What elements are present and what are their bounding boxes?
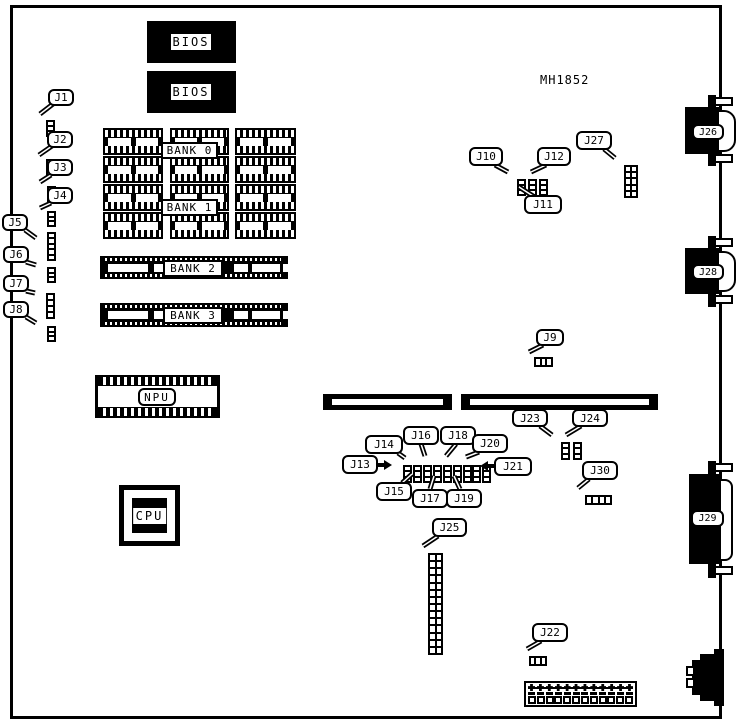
callout-j3: J3	[47, 159, 73, 176]
memory-dip-socket	[103, 128, 163, 155]
memory-dip-socket	[235, 128, 296, 155]
callout-j15: J15	[376, 482, 412, 501]
callout-j10: J10	[469, 147, 503, 166]
bios-chip-bottom: BIOS	[147, 71, 236, 113]
memory-dip-socket	[103, 156, 163, 183]
callout-j18: J18	[440, 426, 476, 445]
bank3-label: BANK 3	[163, 307, 223, 324]
callout-j13: J13	[342, 455, 378, 474]
callout-j23: J23	[512, 409, 548, 427]
j18-jumper	[453, 465, 462, 483]
callout-j27: J27	[576, 131, 612, 150]
j16-jumper	[433, 465, 442, 483]
j30-jumper	[585, 495, 612, 505]
j12-jumper	[539, 179, 548, 196]
j26-screw-tab-top	[714, 97, 733, 106]
cpu-label: CPU	[133, 508, 167, 524]
callout-j20: J20	[472, 434, 508, 453]
expansion-slot-right	[461, 394, 658, 410]
bios-chip-top-label: BIOS	[171, 34, 211, 50]
bank0-label: BANK 0	[161, 142, 218, 159]
memory-dip-socket	[103, 184, 163, 211]
j15-jumper	[423, 465, 432, 483]
memory-dip-socket	[235, 212, 296, 239]
j28-screw-tab-top	[714, 238, 733, 247]
callout-j24: J24	[572, 409, 608, 427]
memory-dip-socket	[103, 212, 163, 239]
bios-chip-bottom-label: BIOS	[171, 84, 211, 100]
j11-jumper	[528, 179, 537, 196]
callout-j11: J11	[524, 195, 562, 214]
power-connector-pins-bottom	[528, 696, 633, 704]
callout-j12: J12	[537, 147, 571, 166]
j19-jumper	[463, 465, 472, 483]
j8-jumper	[47, 326, 56, 342]
j7-jumper	[46, 293, 55, 319]
j29-label: J29	[691, 510, 724, 527]
keyboard-din-pin-bottom	[686, 678, 695, 688]
npu-label: NPU	[138, 388, 176, 406]
bank1-label: BANK 1	[161, 199, 218, 216]
j20-jumper	[472, 465, 481, 483]
j6-jumper	[47, 267, 56, 283]
callout-j2: J2	[47, 131, 73, 148]
callout-j22: J22	[532, 623, 568, 642]
j21-jumper	[482, 465, 491, 483]
callout-j6: J6	[3, 246, 29, 263]
power-connector-pins-top	[528, 684, 633, 691]
motherboard-jumper-diagram: MH1852 BIOS BIOS BANK 0 BANK 1 BANK 2	[0, 0, 737, 722]
memory-dip-socket	[170, 156, 229, 183]
j24-jumper	[573, 442, 582, 460]
j23-jumper	[561, 442, 570, 460]
power-connector-pins-mid	[528, 692, 633, 695]
j9-jumper	[534, 357, 553, 367]
callout-j21: J21	[494, 457, 532, 476]
callout-j17: J17	[412, 489, 448, 508]
board-model-label: MH1852	[540, 73, 589, 87]
expansion-slot-left	[323, 394, 452, 410]
keyboard-din-connector-step	[700, 654, 716, 701]
j14-jumper	[413, 465, 422, 483]
memory-dip-socket	[170, 212, 229, 239]
bios-chip-top: BIOS	[147, 21, 236, 63]
callout-j9: J9	[536, 329, 564, 346]
j28-screw-tab-bottom	[714, 295, 733, 304]
callout-j5: J5	[2, 214, 28, 231]
j29-screw-tab-bottom	[714, 566, 733, 575]
j25-jumper	[428, 553, 443, 655]
callout-j14: J14	[365, 435, 403, 454]
j29-screw-tab-top	[714, 463, 733, 472]
j22-jumper	[529, 656, 547, 666]
j13-jumper	[403, 465, 412, 483]
callout-j4: J4	[47, 187, 73, 204]
memory-dip-socket	[235, 184, 296, 211]
keyboard-din-pin-top	[686, 666, 695, 676]
j26-label: J26	[692, 124, 724, 140]
memory-dip-socket	[235, 156, 296, 183]
callout-j1: J1	[48, 89, 74, 106]
callout-j8: J8	[3, 301, 29, 318]
j27-jumper	[624, 165, 638, 198]
bank2-label: BANK 2	[163, 260, 223, 277]
j4-jumper	[47, 211, 56, 227]
j17-jumper	[443, 465, 452, 483]
board-outline: MH1852 BIOS BIOS BANK 0 BANK 1 BANK 2	[10, 5, 722, 719]
j28-label: J28	[692, 264, 724, 280]
callout-j16: J16	[403, 426, 439, 445]
callout-j25: J25	[432, 518, 467, 537]
j5-jumper	[47, 232, 56, 261]
cpu-socket: CPU	[119, 485, 180, 546]
callout-j7: J7	[3, 275, 29, 292]
power-connector	[524, 681, 637, 707]
callout-j30: J30	[582, 461, 618, 480]
j10-jumper	[517, 179, 526, 196]
j26-screw-tab-bottom	[714, 154, 733, 163]
callout-j19: J19	[446, 489, 482, 508]
